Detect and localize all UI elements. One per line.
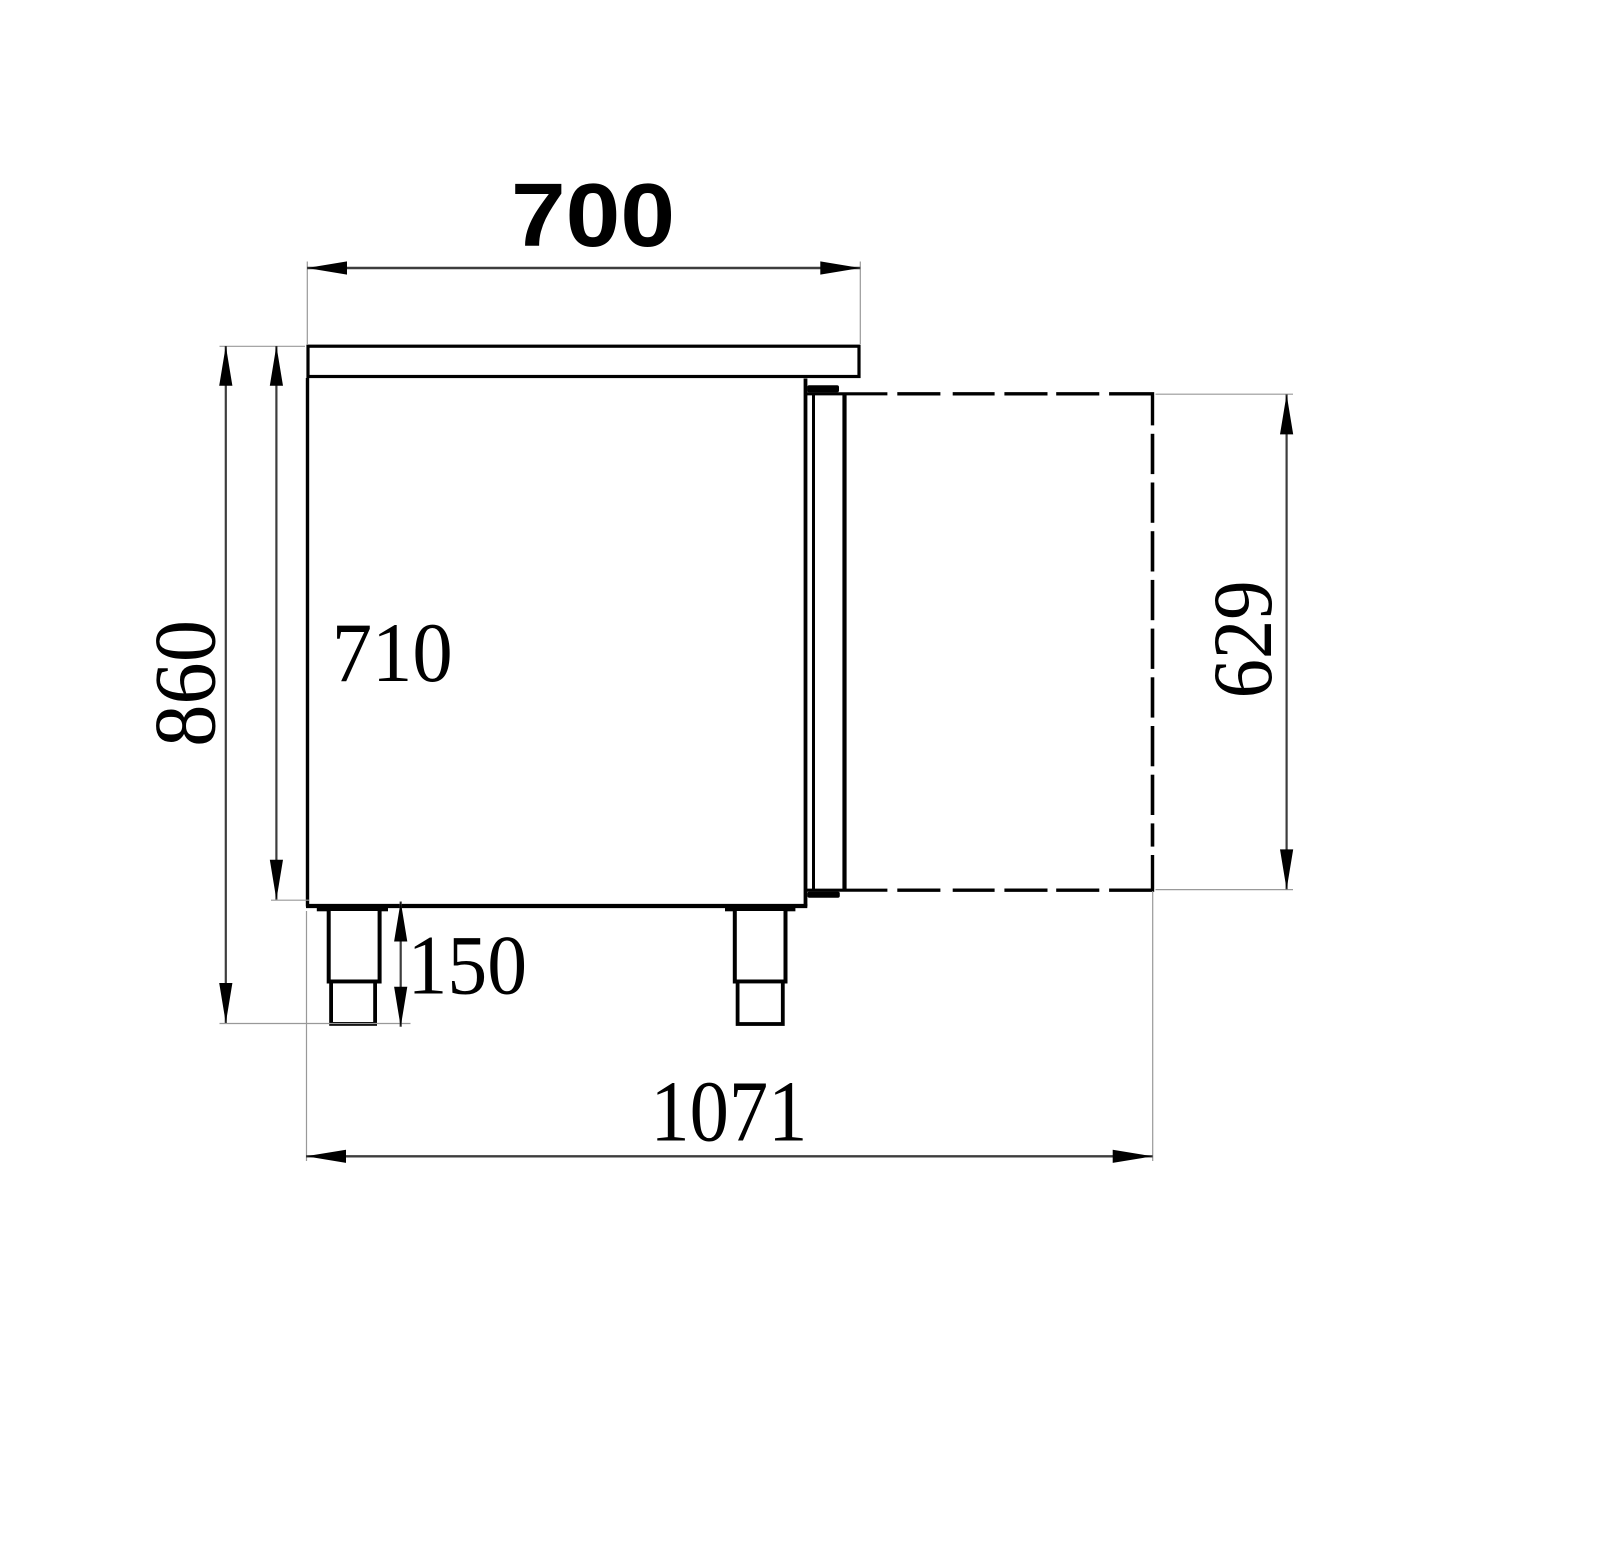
svg-text:700: 700	[511, 166, 675, 266]
svg-text:150: 150	[408, 919, 528, 1013]
svg-text:1071: 1071	[650, 1063, 807, 1160]
svg-text:710: 710	[332, 606, 453, 700]
svg-text:860: 860	[137, 620, 234, 747]
svg-text:629: 629	[1196, 580, 1290, 698]
